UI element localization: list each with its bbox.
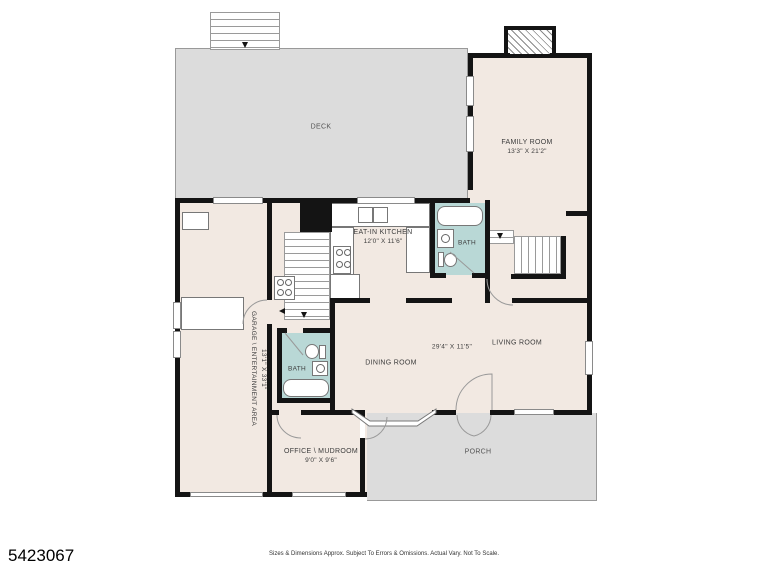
living-dining-dims: 29'4" X 11'5" <box>432 343 472 352</box>
wall <box>175 198 215 203</box>
listing-id: 5423067 <box>8 546 74 566</box>
toilet-bowl <box>305 344 319 359</box>
wall <box>305 198 359 203</box>
wall <box>430 273 446 278</box>
wall <box>406 298 452 303</box>
kitchen-label: EAT-IN KITCHEN 12'0" X 11'6" <box>354 228 413 246</box>
garage-worktable <box>181 297 244 330</box>
family-room-area <box>468 53 592 213</box>
porch-label: PORCH <box>465 448 492 457</box>
wall <box>566 211 587 216</box>
wall <box>512 298 592 303</box>
office-porch-door-arc <box>365 417 387 439</box>
window <box>213 197 263 204</box>
stairs-down-arrow <box>497 233 503 239</box>
dining-room-label: DINING ROOM <box>365 359 417 368</box>
wall <box>330 298 335 414</box>
sink-basin <box>316 364 325 373</box>
hall-door-arc <box>487 279 513 305</box>
wall <box>550 53 592 58</box>
window <box>292 492 346 497</box>
porch-door-fan <box>456 415 492 437</box>
right-staircase <box>514 236 561 274</box>
window <box>173 302 181 329</box>
stove-icon <box>333 246 351 274</box>
window <box>514 409 554 415</box>
wall <box>300 198 332 232</box>
wall <box>303 328 333 333</box>
garage-door <box>190 492 263 497</box>
wall <box>330 298 370 303</box>
bath-door-leaf <box>285 333 303 355</box>
family-room-label: FAMILY ROOM 13'3" X 21'2" <box>501 138 552 156</box>
stairs-down-arrow <box>301 312 307 318</box>
disclaimer-text: Sizes & Dimensions Approx. Subject To Er… <box>269 551 499 557</box>
bathtub-icon <box>437 206 483 226</box>
window <box>466 76 474 106</box>
living-room-label: LIVING ROOM <box>492 339 542 348</box>
office-door-arc <box>277 415 301 438</box>
bath-upper-label: BATH <box>458 239 476 248</box>
window <box>585 341 593 375</box>
wall <box>267 198 272 300</box>
wall <box>277 328 282 403</box>
deck-label: DECK <box>311 123 332 132</box>
laundry-appliance-icon <box>274 276 295 300</box>
window <box>173 331 181 358</box>
office-label: OFFICE \ MUDROOM 9'0" X 9'6" <box>284 447 358 465</box>
front-door-arc <box>456 374 492 410</box>
wall <box>554 410 592 415</box>
wall <box>468 53 510 58</box>
fireplace <box>504 26 556 58</box>
bath-door-leaf <box>450 252 474 273</box>
wall <box>430 200 435 278</box>
sink-basin <box>441 234 450 243</box>
kitchen-sink <box>358 207 373 223</box>
wall <box>561 236 566 279</box>
bay-window <box>351 408 437 428</box>
kitchen-island <box>330 274 360 300</box>
stairs-down-arrow <box>242 42 248 48</box>
floor-plan: DECK FAMILY ROOM 13'3" X 21'2" EAT-IN KI… <box>0 0 768 576</box>
bath-lower-label: BATH <box>288 365 306 374</box>
window <box>357 197 415 204</box>
kitchen-sink <box>373 207 388 223</box>
window <box>466 116 474 152</box>
bathtub-icon <box>283 379 329 397</box>
wall <box>490 410 514 415</box>
toilet-tank <box>319 345 326 359</box>
garage-label: GARAGE \ ENTERTAINMENT AREA 13'1" X 33'1… <box>248 294 268 444</box>
wall <box>511 274 565 279</box>
wall <box>277 398 333 403</box>
garage-storage-box <box>182 212 209 230</box>
wall <box>415 198 470 203</box>
door-arrow <box>279 308 285 314</box>
